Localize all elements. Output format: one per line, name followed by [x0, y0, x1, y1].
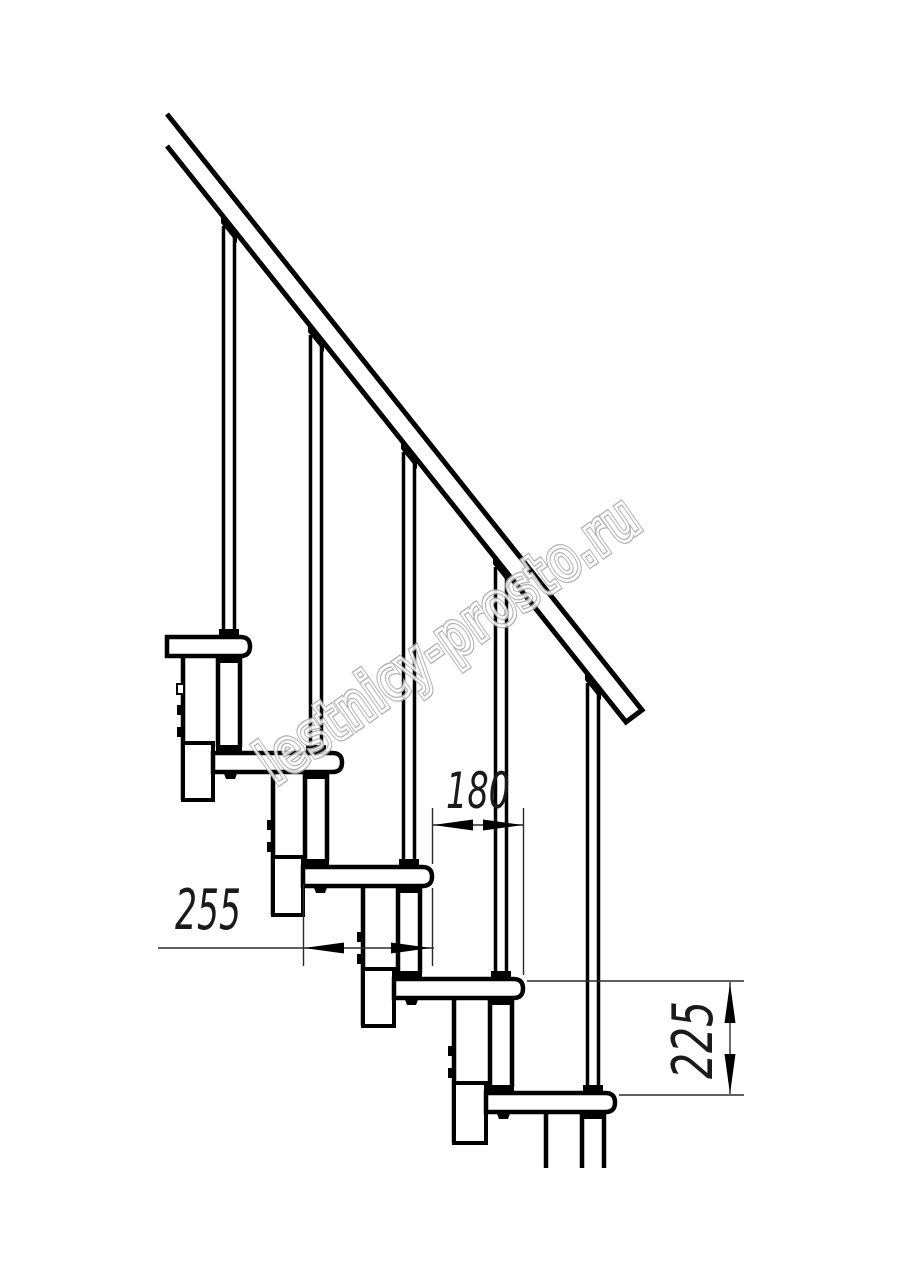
- module-box: [183, 743, 213, 800]
- module-box: [273, 857, 303, 915]
- support-column: [303, 771, 329, 867]
- arrowhead-left: [304, 943, 344, 954]
- drawing-page: 255 180 225 lestnicy-prosto.ru lestnicy-…: [0, 0, 914, 1280]
- tread: [303, 867, 432, 886]
- dimension-value-180: 180: [446, 762, 510, 820]
- tread: [167, 637, 250, 656]
- baluster: [583, 671, 603, 1093]
- support-column: [396, 885, 422, 979]
- tread: [486, 1093, 615, 1112]
- arrowhead-right: [483, 820, 523, 831]
- watermark: lestnicy-prosto.ru lestnicy-prosto.ru: [242, 480, 652, 798]
- support-column: [580, 1111, 606, 1168]
- tread: [394, 979, 523, 998]
- dimension-225: 225: [527, 981, 744, 1095]
- arrowhead-down: [725, 1054, 736, 1094]
- arrowhead-left: [433, 820, 473, 831]
- staircase-technical-drawing: 255 180 225 lestnicy-prosto.ru lestnicy-…: [0, 0, 914, 1280]
- baluster: [219, 214, 239, 637]
- arrowhead-right: [391, 943, 431, 954]
- arrowhead-up: [725, 983, 736, 1023]
- dimension-value-225: 225: [661, 1001, 726, 1079]
- bolt-tab-open: [177, 684, 184, 694]
- dimension-value-255: 255: [175, 878, 241, 943]
- watermark-text-inner: lestnicy-prosto.ru: [242, 480, 652, 798]
- module-box: [454, 1083, 486, 1143]
- support-column: [488, 997, 514, 1093]
- module-box: [363, 969, 394, 1026]
- dimension-180: 180: [432, 762, 524, 975]
- support-column: [216, 655, 242, 753]
